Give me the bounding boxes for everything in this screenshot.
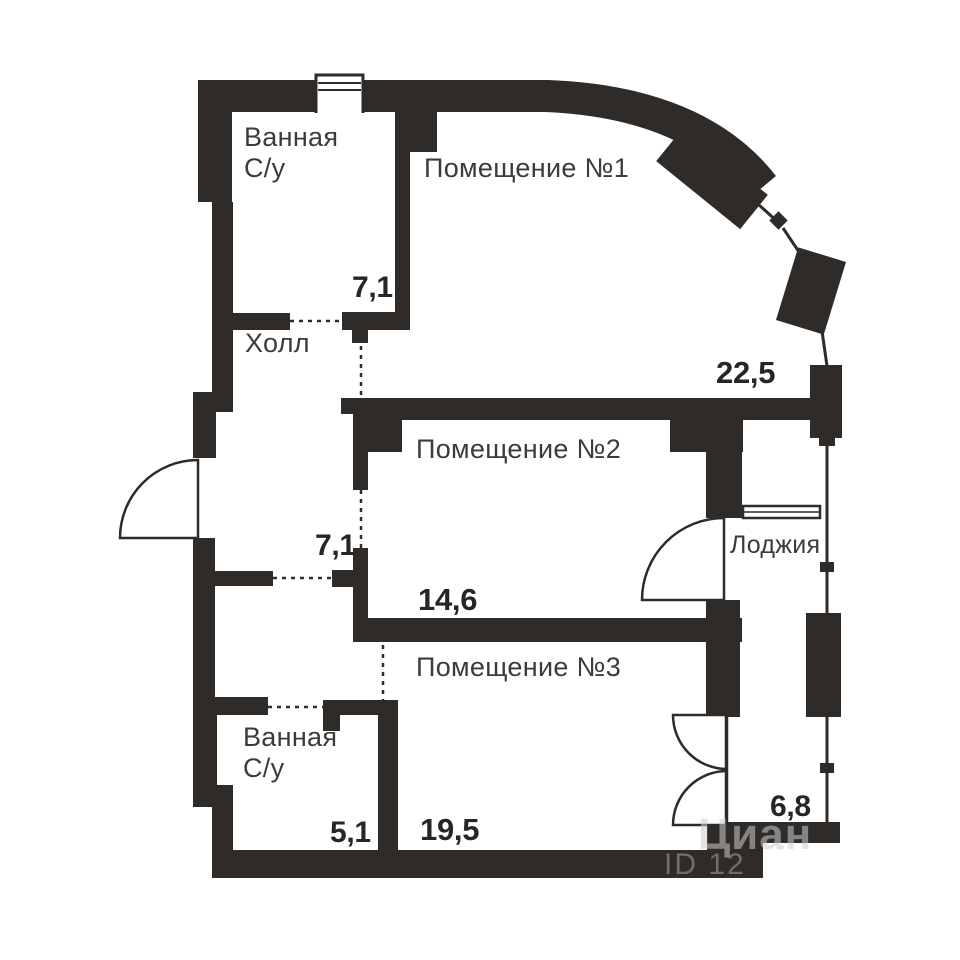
bay-glazing-joint bbox=[769, 211, 787, 229]
bay-end-block bbox=[810, 365, 842, 438]
floor-plan-drawing bbox=[0, 0, 960, 960]
loggia-window bbox=[743, 506, 820, 518]
vent-shaft bbox=[316, 75, 363, 113]
floor-plan: Ванная С/у Помещение №1 Холл Помещение №… bbox=[0, 0, 960, 960]
entrance-door bbox=[120, 460, 198, 538]
area-bathroom-2: 5,1 bbox=[330, 816, 371, 850]
area-hall: 7,1 bbox=[315, 529, 356, 563]
watermark-id: ID 12 bbox=[664, 848, 746, 882]
balcony-double-door-top bbox=[673, 715, 727, 769]
label-hall: Холл bbox=[245, 328, 310, 359]
label-loggia: Лоджия bbox=[730, 530, 820, 561]
area-room-1: 22,5 bbox=[716, 355, 775, 391]
area-bathroom-1: 7,1 bbox=[352, 271, 393, 305]
area-room-3: 19,5 bbox=[420, 812, 479, 848]
label-bathroom-2: Ванная С/у bbox=[243, 722, 337, 784]
bay-pillar-2 bbox=[776, 247, 846, 334]
label-bathroom-1: Ванная С/у bbox=[244, 122, 338, 184]
label-room-2: Помещение №2 bbox=[416, 434, 621, 465]
label-room-1: Помещение №1 bbox=[424, 153, 629, 184]
loggia-door bbox=[642, 518, 724, 600]
label-room-3: Помещение №3 bbox=[416, 652, 621, 683]
openings bbox=[268, 321, 383, 707]
area-room-2: 14,6 bbox=[418, 582, 477, 618]
